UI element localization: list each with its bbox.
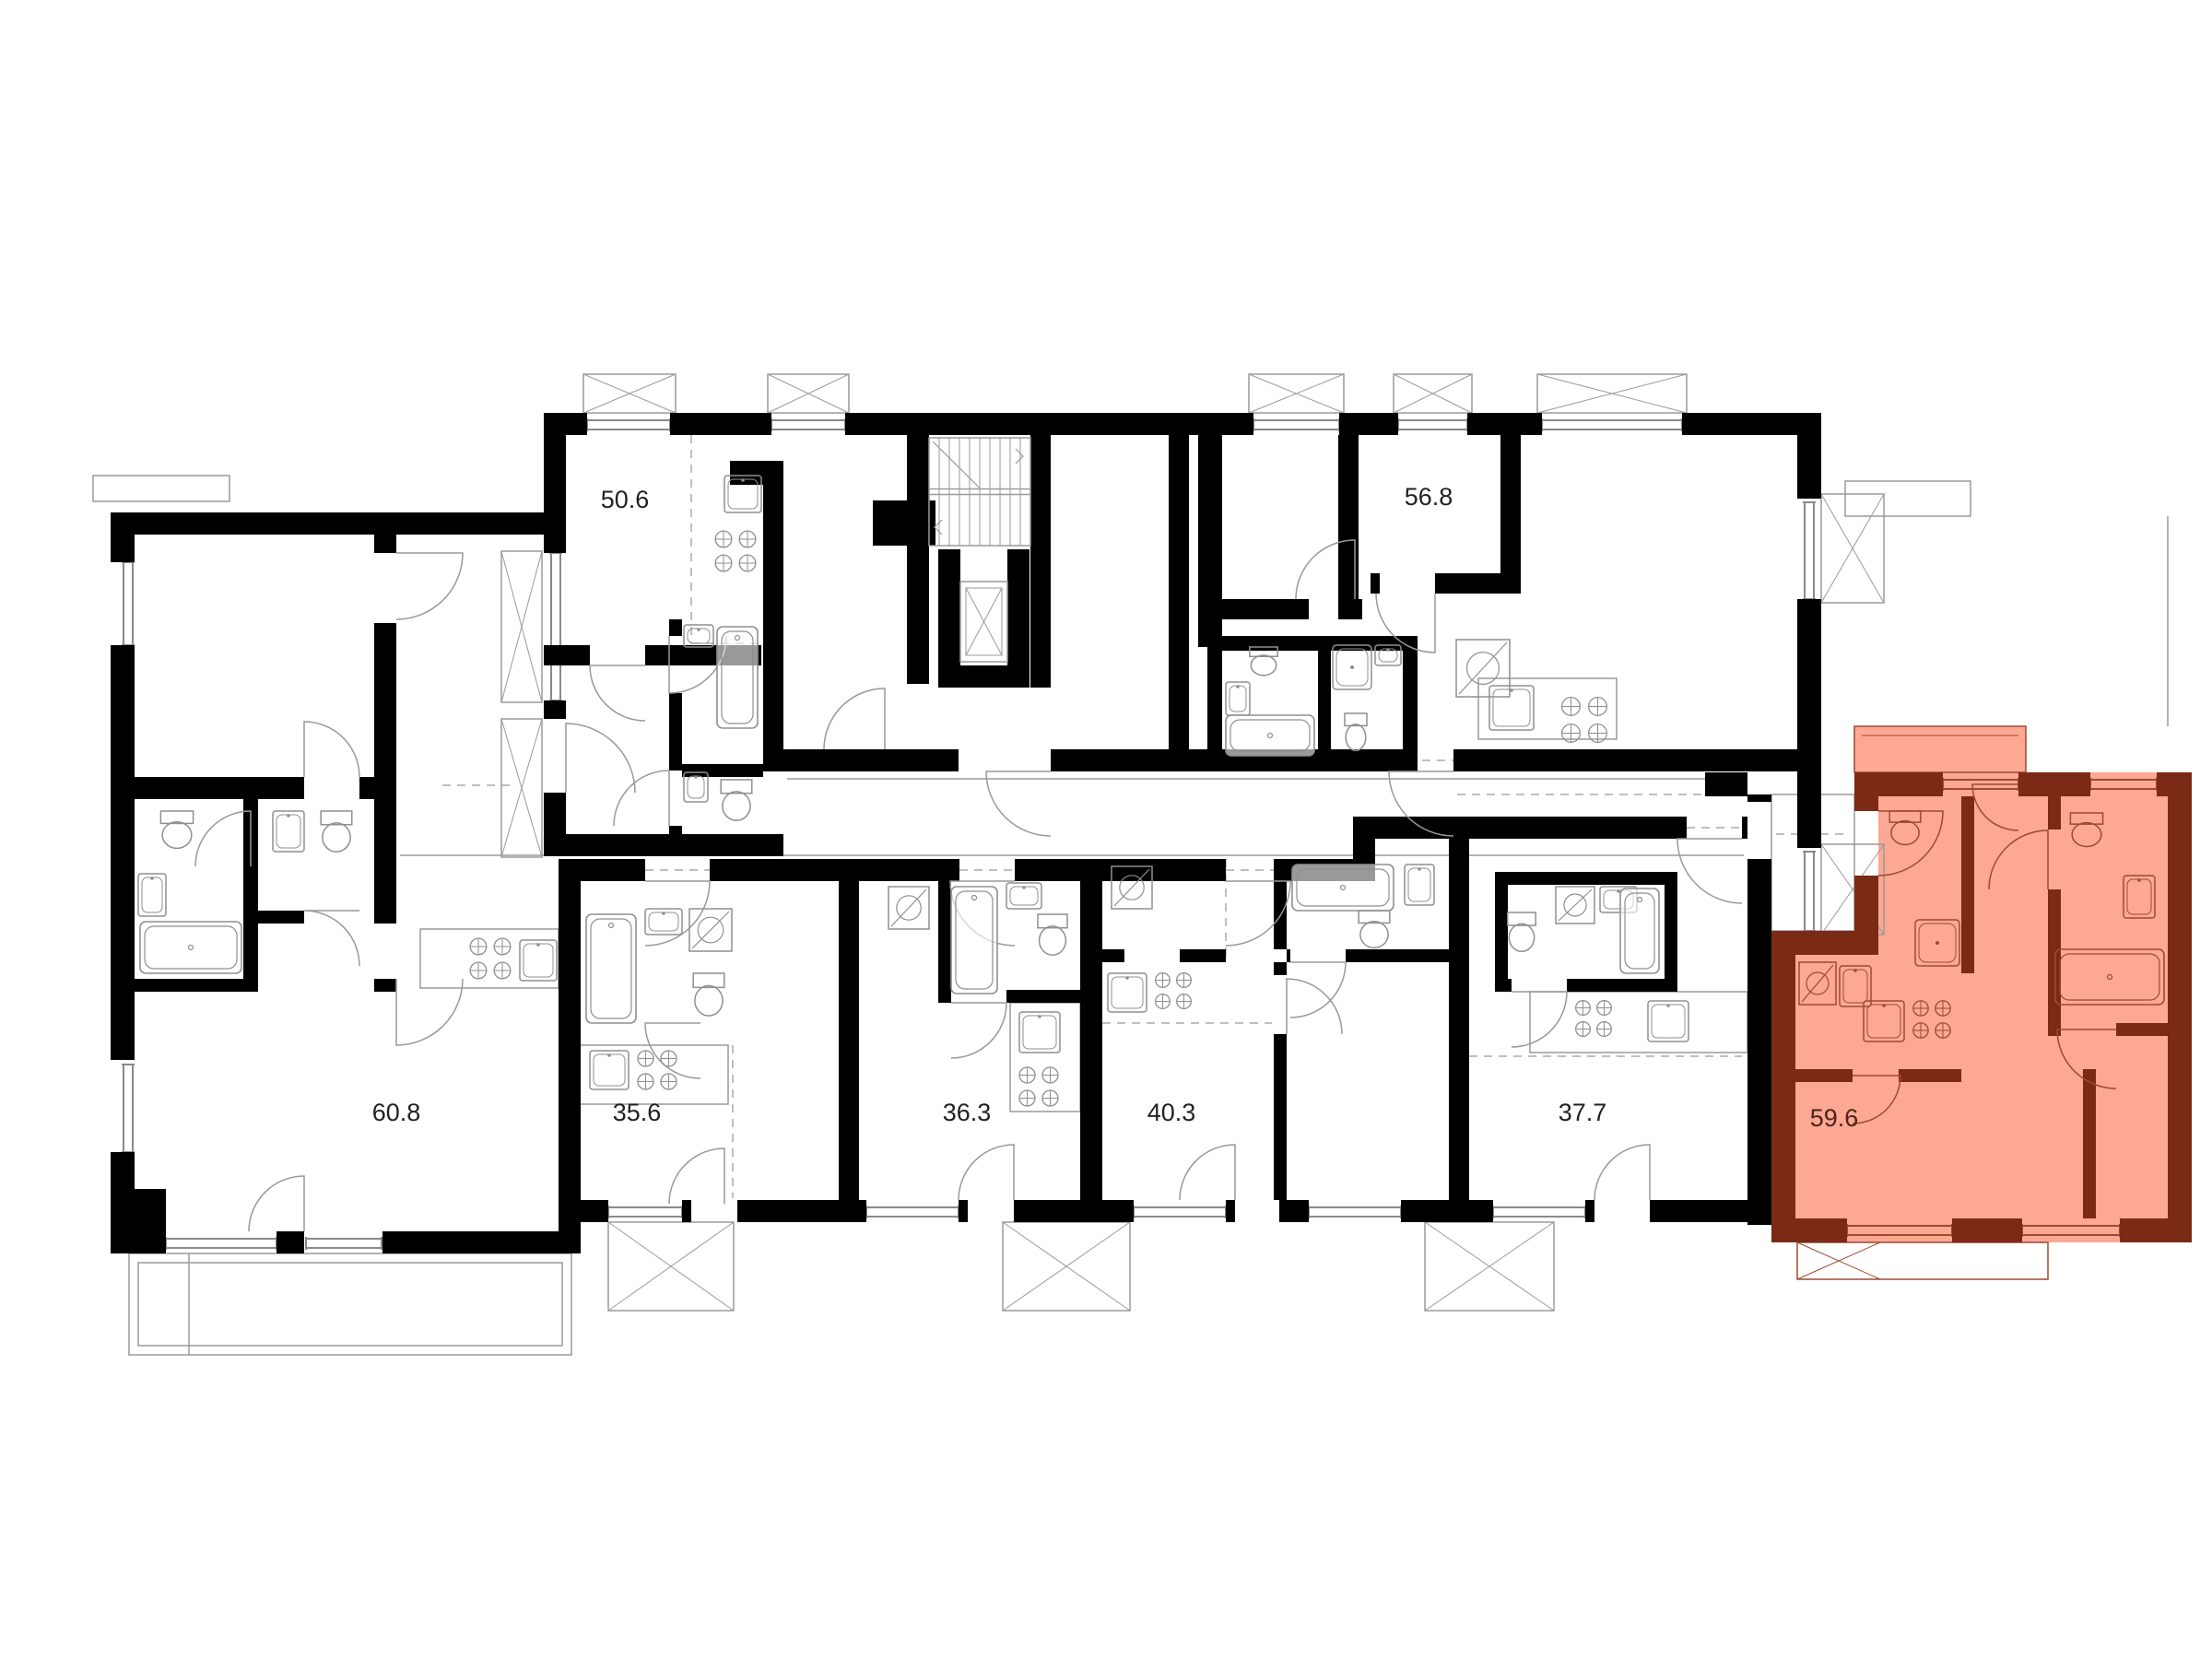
wall	[1797, 413, 1821, 499]
window-icon	[1493, 1206, 1585, 1218]
wall	[1747, 794, 1771, 802]
wall	[111, 512, 374, 535]
balcony-xbox-icon	[1821, 494, 1884, 603]
wall	[1030, 435, 1051, 688]
thin-outline	[138, 1263, 562, 1346]
wall	[1449, 1200, 1493, 1222]
wall	[907, 435, 929, 684]
wall	[1014, 1200, 1080, 1222]
thin-outline	[93, 476, 229, 501]
wall	[839, 859, 859, 1222]
window-icon	[306, 1237, 382, 1250]
wall	[670, 413, 771, 435]
balcony-highlight-bottom	[1797, 1242, 2048, 1279]
wall	[374, 512, 544, 535]
window-icon	[1803, 502, 1816, 599]
wall	[737, 1200, 841, 1222]
apartment-region-37-7[interactable]	[1469, 839, 1746, 1198]
window-icon	[587, 418, 670, 431]
wall	[1169, 435, 1189, 771]
window-icon	[1398, 418, 1467, 431]
door-arc	[986, 771, 1051, 836]
balcony-xbox-icon	[1394, 374, 1472, 413]
balcony-xbox-icon	[768, 374, 849, 413]
wall	[1279, 1200, 1309, 1222]
staircase-icon	[929, 438, 1030, 546]
wall	[544, 834, 783, 856]
wall	[710, 859, 959, 881]
window-icon	[1253, 418, 1339, 431]
wall	[1705, 772, 1747, 796]
balcony-xbox-icon	[1249, 374, 1344, 413]
window-icon	[866, 1206, 959, 1218]
wall	[559, 859, 645, 881]
wall	[959, 1200, 968, 1222]
wall	[1401, 1200, 1449, 1222]
wall-highlighted	[2168, 772, 2192, 1242]
wall-highlighted	[1771, 931, 1795, 1242]
wall-highlighted	[1952, 1218, 2022, 1242]
wall	[544, 413, 566, 553]
wall	[1453, 749, 1797, 771]
wall	[1449, 817, 1469, 1222]
wall	[1747, 859, 1771, 1225]
window-icon	[1309, 1206, 1401, 1218]
wall	[1339, 413, 1398, 435]
wall-highlighted	[2120, 1218, 2192, 1242]
wall	[1467, 413, 1542, 435]
wall	[382, 1231, 581, 1253]
wall-highlighted	[2018, 772, 2090, 796]
wall	[1051, 749, 1169, 771]
wall	[841, 1200, 866, 1222]
window-icon	[1134, 1206, 1226, 1218]
wall	[1742, 817, 1747, 839]
wall	[111, 645, 135, 1060]
wall	[1585, 1200, 1594, 1222]
window-icon	[122, 562, 135, 645]
balcony-highlight	[1854, 726, 2026, 772]
wall	[559, 1200, 608, 1222]
thin-outline	[129, 1253, 571, 1355]
wall	[1226, 1200, 1235, 1222]
wall	[1650, 1200, 1747, 1222]
wall	[111, 1231, 166, 1253]
wall	[1080, 859, 1102, 1222]
floor-plan: 50.656.860.835.636.340.337.759.6	[0, 0, 2212, 1659]
balcony-xbox-icon	[608, 1222, 734, 1311]
apartment-region-59-6[interactable]	[1795, 796, 2168, 1217]
wall	[111, 512, 135, 562]
wall	[1682, 413, 1797, 435]
apartment-region-56-8[interactable]	[1222, 435, 1797, 748]
apartment-region-50-6[interactable]	[566, 435, 870, 831]
wall-highlighted	[1771, 1218, 1847, 1242]
balcony-xbox-icon	[583, 374, 676, 413]
wall	[276, 1231, 304, 1253]
wall	[1353, 817, 1687, 839]
window-icon	[122, 1065, 135, 1152]
window-icon	[1542, 418, 1682, 431]
window-icon	[771, 418, 845, 431]
wall	[559, 859, 581, 1253]
balcony-xbox-icon	[1537, 374, 1687, 413]
balcony-xbox-icon	[1003, 1222, 1130, 1311]
wall	[682, 1200, 691, 1222]
wall	[938, 665, 1030, 688]
apartment-region-40-3[interactable]	[1102, 839, 1449, 1198]
apartment-region-60-8[interactable]	[135, 535, 557, 1230]
elevator-icon	[960, 582, 1007, 662]
apartment-region-36-3[interactable]	[859, 881, 1080, 1199]
floor-plan-page: 50.656.860.835.636.340.337.759.6	[0, 0, 2212, 1659]
window-icon	[608, 1206, 682, 1218]
thin-outline	[1845, 481, 1971, 516]
wall	[1198, 435, 1222, 647]
balcony-xbox-icon	[1425, 1222, 1554, 1311]
wall	[845, 413, 1253, 435]
wall	[1080, 1200, 1134, 1222]
window-icon	[166, 1237, 276, 1250]
apartment-hit-regions	[135, 435, 2168, 1230]
apartment-region-35-6[interactable]	[581, 881, 839, 1199]
